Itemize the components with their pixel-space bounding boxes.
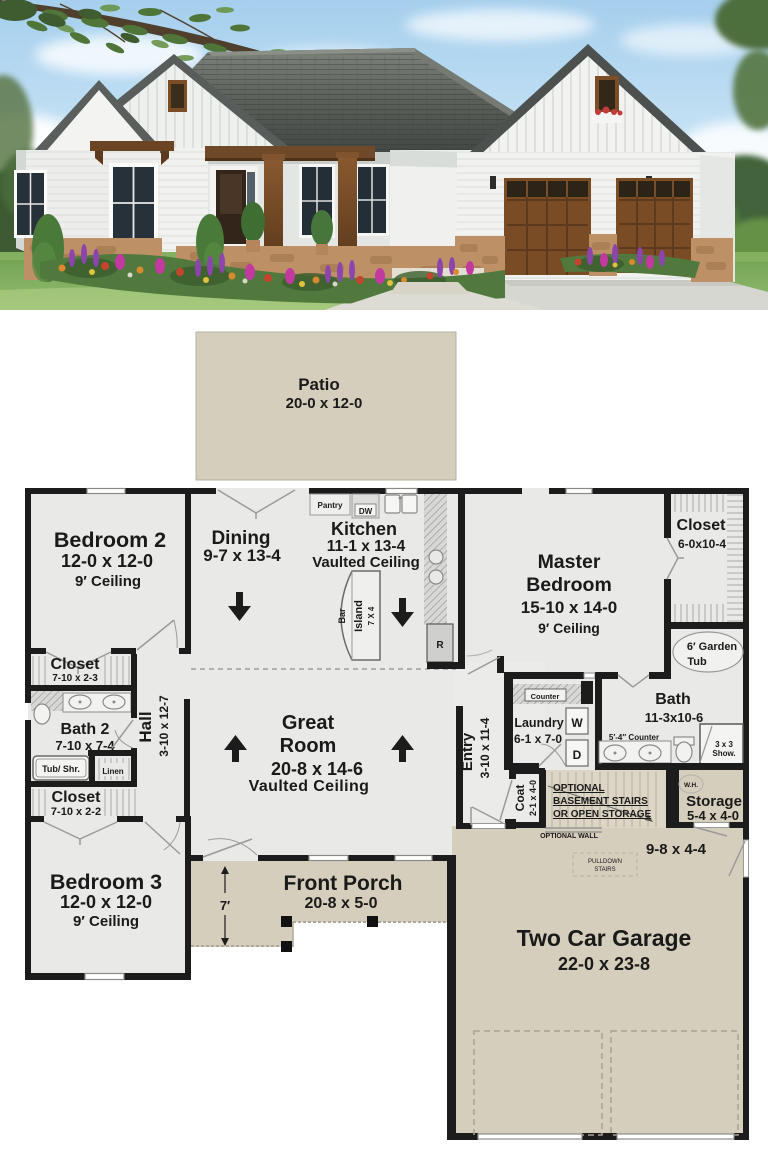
svg-text:DW: DW (359, 507, 373, 516)
svg-text:D: D (573, 748, 582, 762)
svg-text:Great: Great (282, 712, 335, 734)
svg-text:Hall: Hall (136, 711, 155, 742)
svg-text:5-4 x 4-0: 5-4 x 4-0 (687, 808, 739, 823)
svg-text:Pantry: Pantry (318, 501, 343, 510)
svg-text:W.H.: W.H. (684, 782, 698, 789)
svg-text:Bar: Bar (337, 608, 347, 624)
svg-text:9-7 x 13-4: 9-7 x 13-4 (203, 546, 281, 565)
svg-text:9′ Ceiling: 9′ Ceiling (75, 573, 141, 590)
svg-text:6-1 x 7-0: 6-1 x 7-0 (514, 732, 562, 746)
svg-text:Bath 2: Bath 2 (61, 721, 110, 738)
svg-text:Bedroom 2: Bedroom 2 (54, 528, 166, 552)
svg-text:2-1 x 4-0: 2-1 x 4-0 (528, 780, 538, 816)
svg-text:Island: Island (353, 600, 365, 632)
svg-text:9′ Ceiling: 9′ Ceiling (73, 913, 139, 930)
svg-text:BASEMENT STAIRS: BASEMENT STAIRS (553, 796, 648, 807)
svg-text:3-10 x 12-7: 3-10 x 12-7 (157, 695, 171, 757)
svg-text:7-10 x 2-2: 7-10 x 2-2 (51, 806, 101, 818)
svg-text:9′ Ceiling: 9′ Ceiling (538, 620, 600, 636)
svg-text:5′-4″ Counter: 5′-4″ Counter (609, 733, 659, 742)
svg-text:7′: 7′ (220, 898, 230, 913)
svg-text:Patio: Patio (298, 375, 340, 394)
svg-text:OPTIONAL: OPTIONAL (553, 783, 605, 794)
svg-text:PULLDOWN: PULLDOWN (588, 859, 622, 865)
svg-text:20-8 x 14-6: 20-8 x 14-6 (271, 759, 363, 779)
svg-text:Tub/ Shr.: Tub/ Shr. (42, 764, 80, 774)
svg-text:W: W (571, 716, 583, 730)
svg-text:Master: Master (538, 551, 601, 573)
svg-text:Closet: Closet (51, 656, 101, 673)
svg-text:Counter: Counter (531, 692, 560, 701)
svg-text:Bath: Bath (655, 691, 691, 708)
svg-text:Two Car Garage: Two Car Garage (517, 925, 692, 951)
svg-text:12-0 x 12-0: 12-0 x 12-0 (60, 892, 152, 912)
svg-text:Bedroom: Bedroom (526, 574, 612, 596)
svg-text:Room: Room (280, 735, 337, 757)
svg-text:22-0 x 23-8: 22-0 x 23-8 (558, 954, 650, 974)
svg-text:6-0x10-4: 6-0x10-4 (678, 537, 726, 551)
svg-text:R: R (436, 640, 444, 651)
svg-text:Closet: Closet (52, 789, 102, 806)
svg-text:OR OPEN STORAGE: OR OPEN STORAGE (553, 809, 651, 820)
svg-text:7 X 4: 7 X 4 (367, 606, 376, 625)
svg-text:15-10 x 14-0: 15-10 x 14-0 (521, 598, 617, 617)
svg-text:3 x 3: 3 x 3 (715, 740, 733, 749)
svg-text:11-1 x 13-4: 11-1 x 13-4 (327, 538, 406, 555)
svg-text:Vaulted Ceiling: Vaulted Ceiling (249, 778, 370, 795)
svg-text:12-0 x 12-0: 12-0 x 12-0 (61, 551, 153, 571)
svg-text:Kitchen: Kitchen (331, 519, 397, 539)
svg-text:Coat: Coat (513, 785, 527, 812)
svg-text:Front Porch: Front Porch (284, 872, 403, 895)
svg-text:20-0 x 12-0: 20-0 x 12-0 (286, 395, 363, 412)
svg-text:Closet: Closet (677, 517, 727, 534)
svg-text:Tub: Tub (687, 656, 707, 668)
svg-text:9-8 x 4-4: 9-8 x 4-4 (646, 841, 707, 858)
svg-text:6′ Garden: 6′ Garden (687, 641, 738, 653)
svg-text:Bedroom 3: Bedroom 3 (50, 870, 162, 894)
svg-text:Show.: Show. (712, 749, 735, 758)
svg-text:Laundry: Laundry (514, 716, 563, 730)
svg-text:OPTIONAL WALL: OPTIONAL WALL (540, 833, 599, 840)
svg-text:11-3x10-6: 11-3x10-6 (645, 710, 704, 725)
svg-text:Entry: Entry (459, 732, 476, 771)
svg-text:STAIRS: STAIRS (594, 867, 615, 873)
svg-text:20-8 x 5-0: 20-8 x 5-0 (305, 895, 378, 912)
svg-text:Linen: Linen (102, 767, 123, 776)
svg-text:Vaulted Ceiling: Vaulted Ceiling (312, 554, 420, 571)
svg-text:3-10 x 11-4: 3-10 x 11-4 (478, 717, 492, 778)
svg-text:7-10 x 2-3: 7-10 x 2-3 (52, 673, 98, 684)
